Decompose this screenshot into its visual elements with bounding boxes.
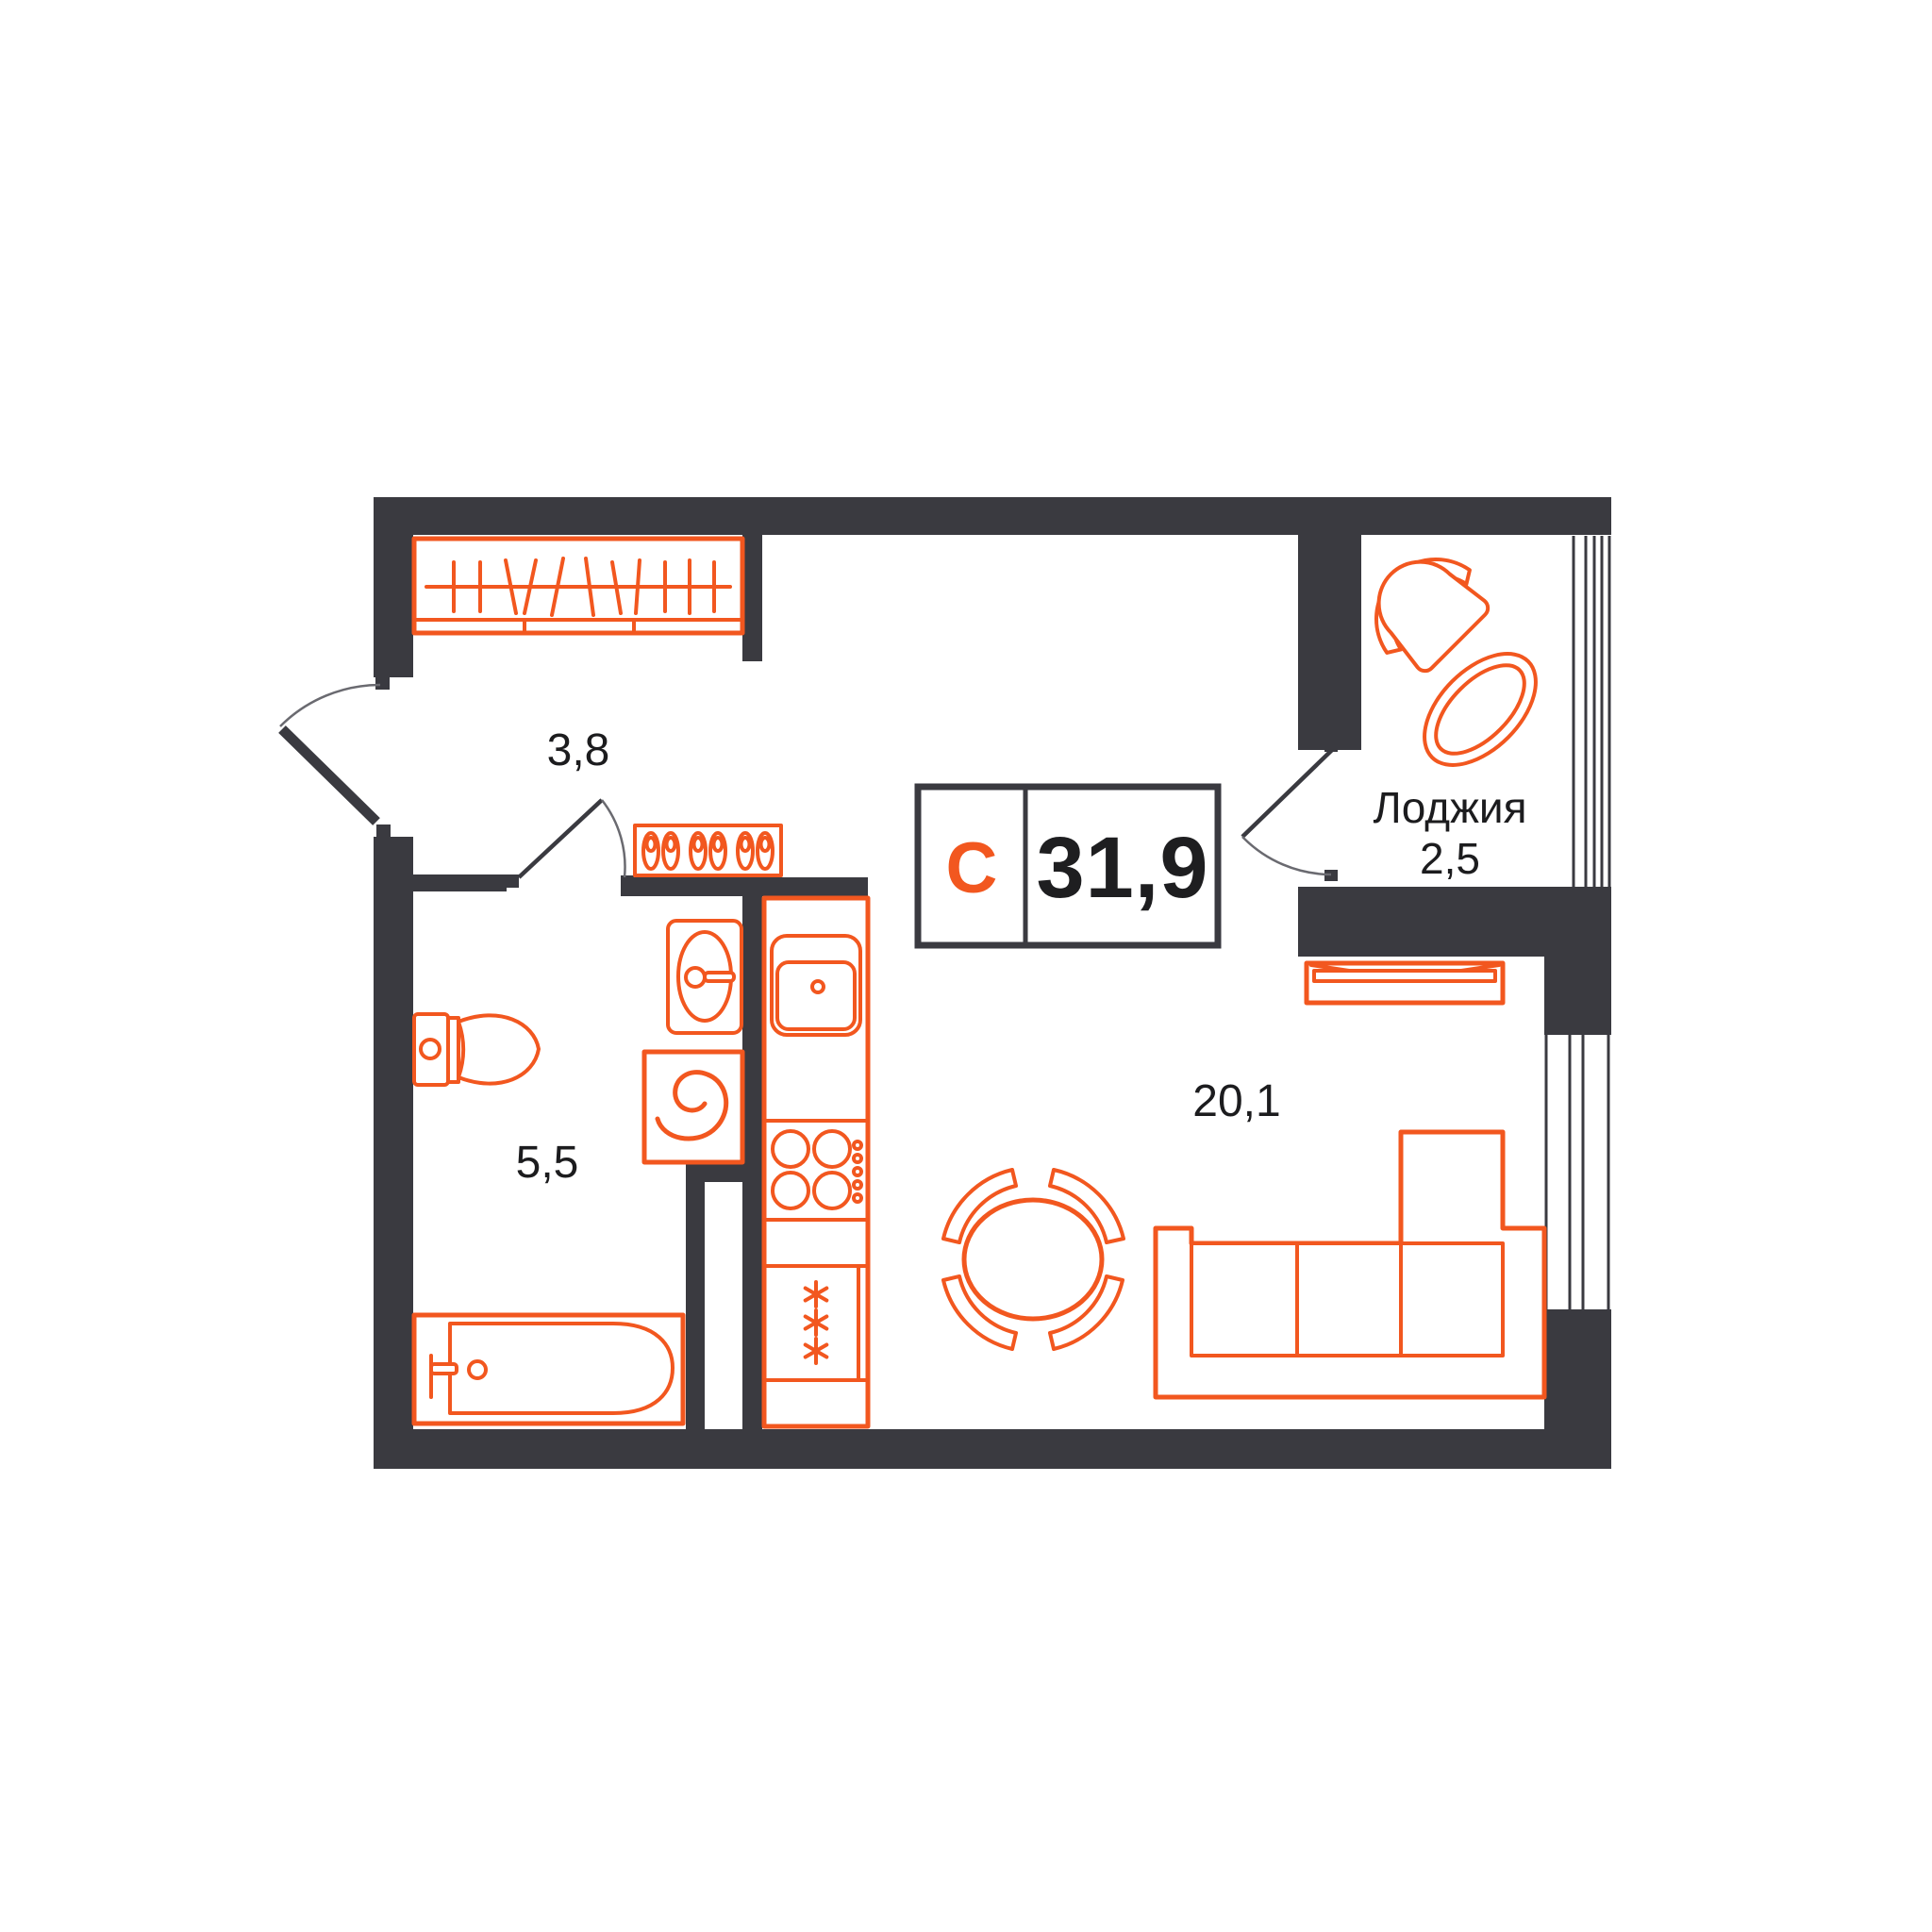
entrance-door xyxy=(280,685,380,822)
bathtub xyxy=(414,1315,683,1424)
wardrobe xyxy=(414,539,742,633)
dining-table xyxy=(964,1200,1102,1319)
total-area-value: 31,9 xyxy=(1036,820,1208,916)
living-room-window xyxy=(1546,1035,1608,1309)
shoe-rack xyxy=(635,825,781,875)
apartment-area-badge: С 31,9 xyxy=(918,787,1218,945)
sofa xyxy=(1156,1132,1544,1397)
loggia-glazing xyxy=(1574,536,1609,887)
kitchen-sink xyxy=(772,936,860,1035)
floor-plan: 3,8 5,5 20,1 Лоджия 2,5 С 31,9 xyxy=(0,0,1932,1932)
living-area-label: 20,1 xyxy=(1192,1076,1280,1126)
bathroom-sink xyxy=(668,921,741,1033)
loggia-door xyxy=(1242,750,1332,874)
loggia-name-label: Лоджия xyxy=(1374,783,1527,832)
hallway-area-label: 3,8 xyxy=(547,725,610,775)
radiator xyxy=(1307,963,1503,1003)
bathroom-door xyxy=(519,800,625,877)
bathroom-area-label: 5,5 xyxy=(516,1138,579,1188)
washing-machine xyxy=(644,1052,742,1162)
apartment-type-letter: С xyxy=(946,828,998,908)
toilet xyxy=(414,1014,539,1085)
loggia-area-label: 2,5 xyxy=(1420,834,1480,883)
floor-plan-page: 3,8 5,5 20,1 Лоджия 2,5 С 31,9 xyxy=(0,0,1932,1932)
